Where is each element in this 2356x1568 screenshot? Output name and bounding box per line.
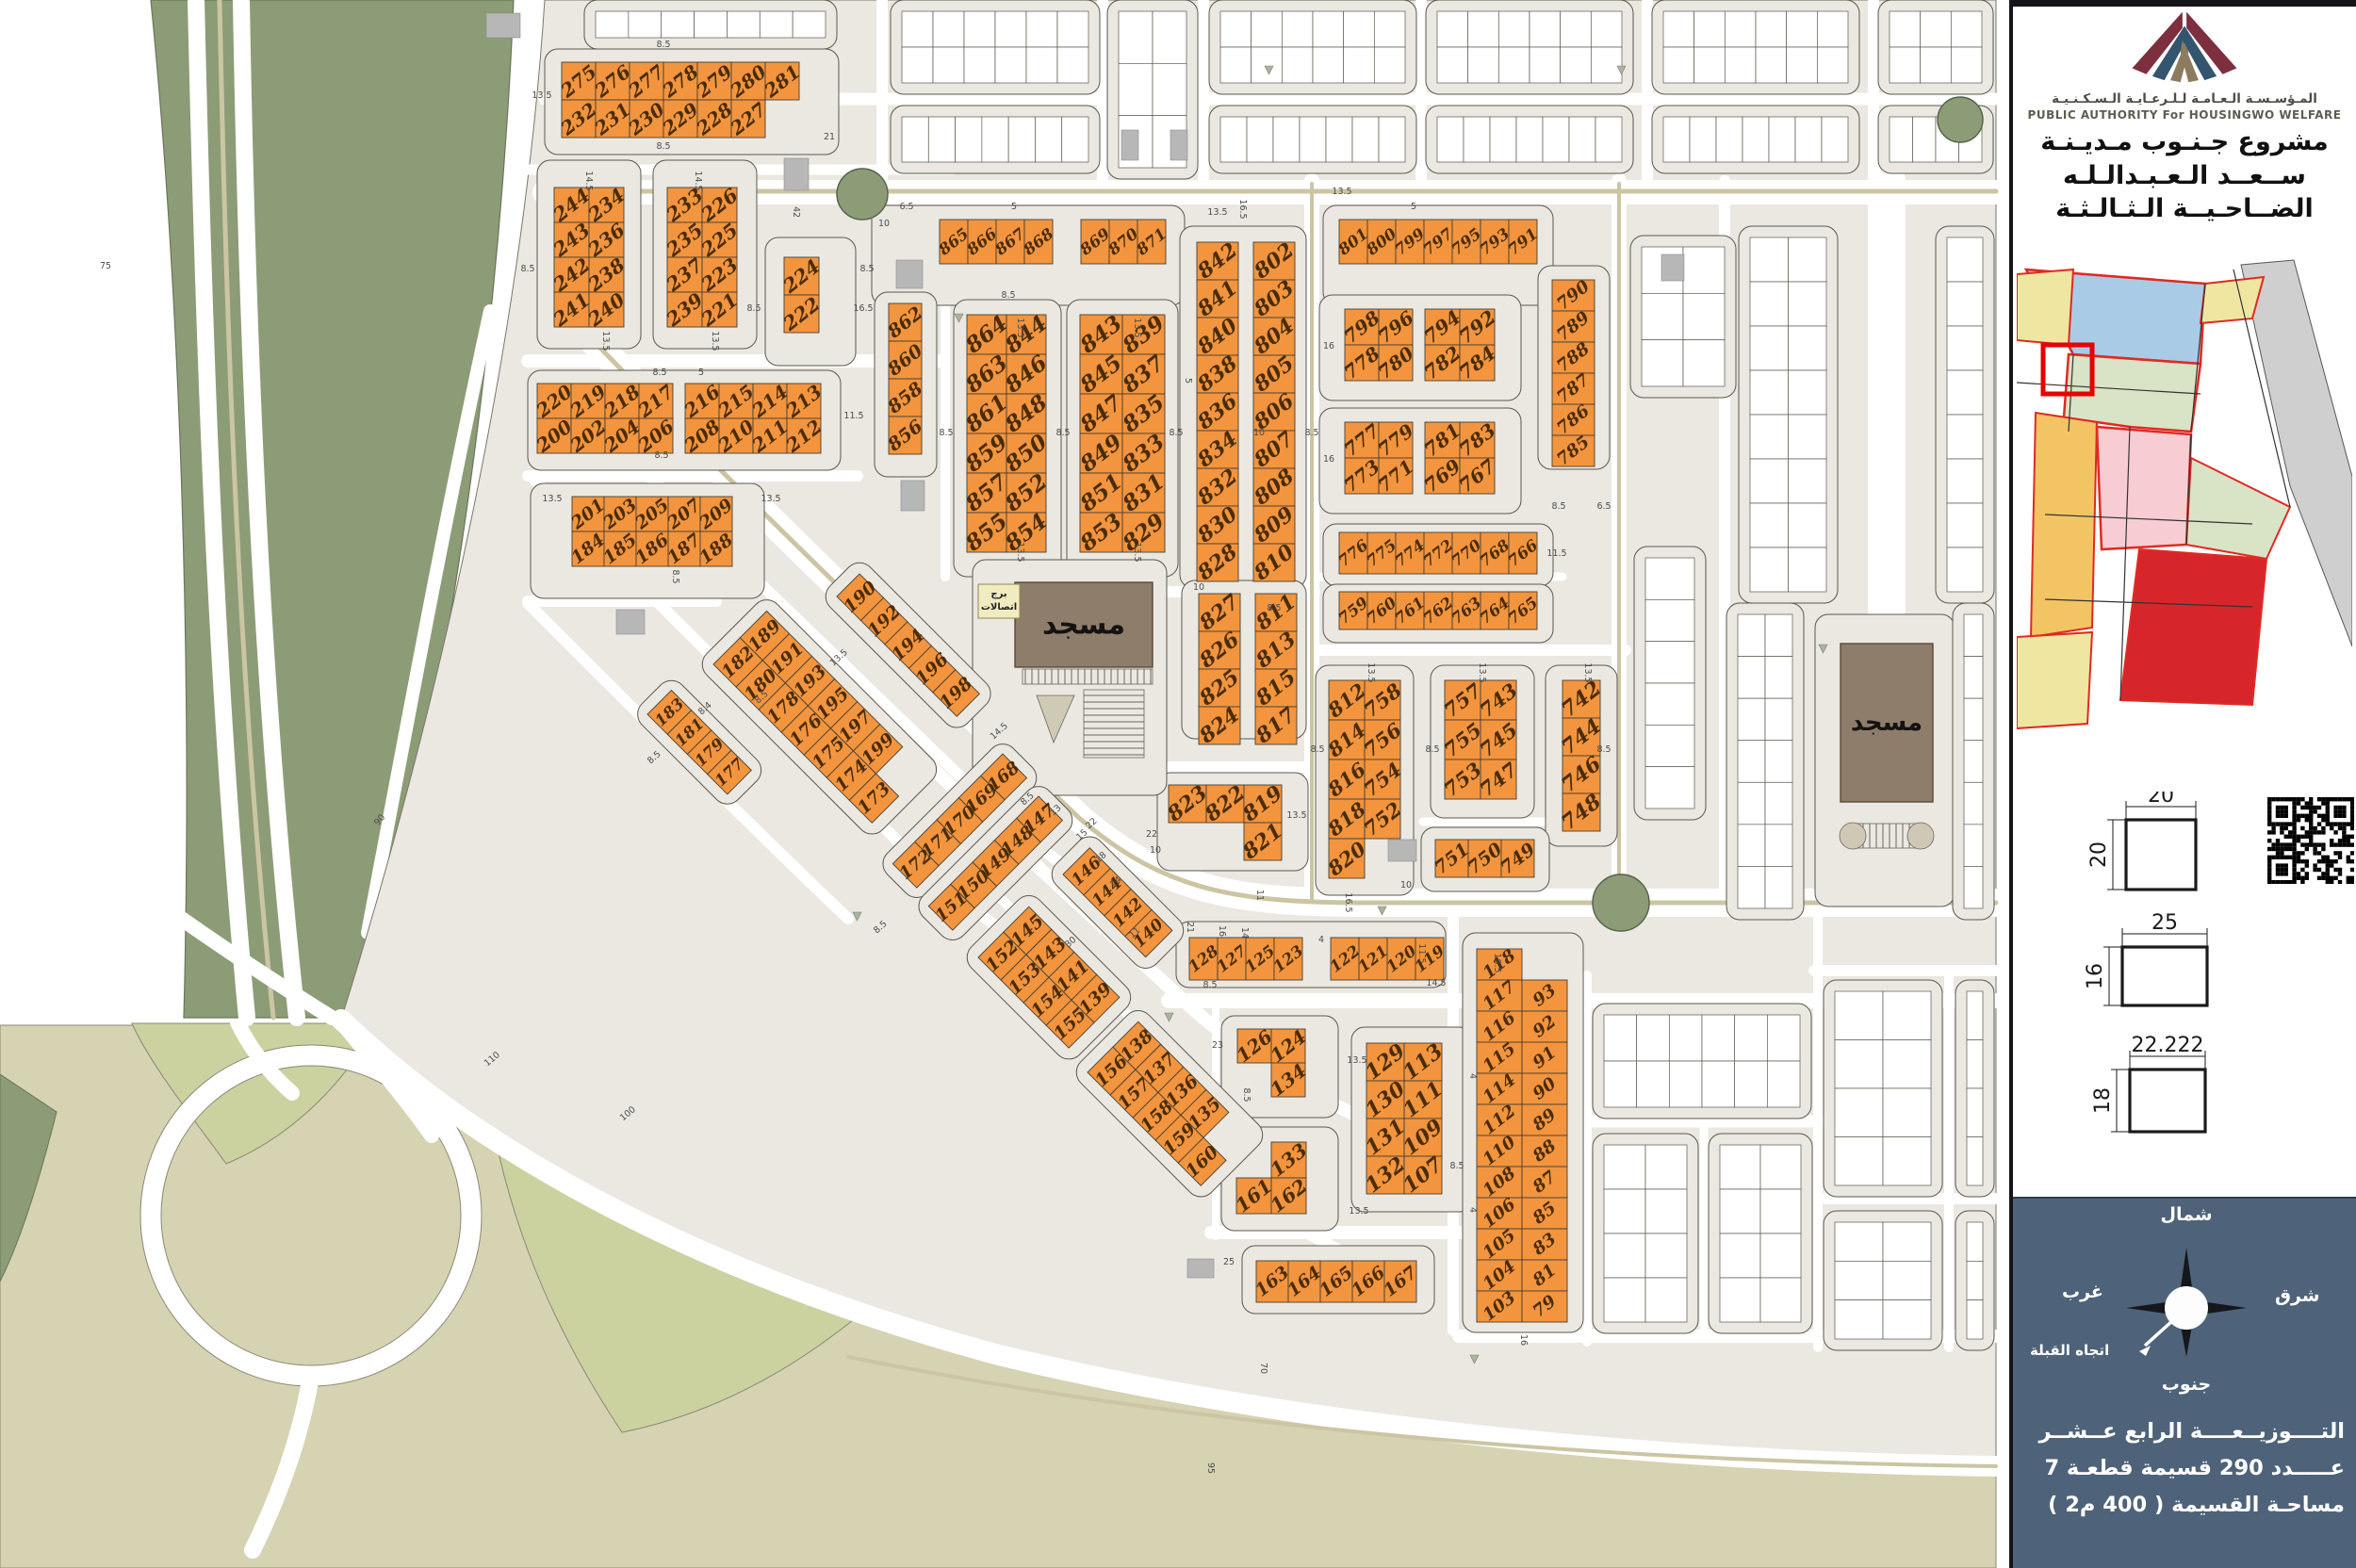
plot-cluster: 220219218217200202204206 <box>532 380 679 457</box>
dimension-label: 4 <box>1467 1073 1478 1079</box>
dimension-label: 8.5 <box>656 141 670 152</box>
dimension-label: 8.5 <box>654 450 668 461</box>
plot-cluster: 244234243236242238241240 <box>548 184 630 332</box>
unshaded-plot-block <box>1209 106 1416 173</box>
dimension-label: 8.5 <box>939 428 953 438</box>
qr-code <box>2267 797 2354 888</box>
plot-cluster: 129113130111131109132107 <box>1361 1039 1448 1199</box>
dimension-label: 16 <box>1518 1334 1529 1346</box>
dimension-label: 13.5 <box>542 494 562 504</box>
dimension-label: 14.5 <box>1426 978 1446 988</box>
dimension-label: 95 <box>1205 1462 1216 1474</box>
dimension-label: 13.5 <box>1132 318 1142 337</box>
compass-south-label: جنوب <box>2162 1374 2211 1395</box>
housing-authority-logo-icon <box>2124 8 2245 88</box>
utility-box <box>616 610 645 634</box>
dimension-label: 4 <box>1467 1207 1478 1213</box>
dimension-label: 5 <box>1183 378 1193 384</box>
dimension-label: 13.5 <box>1015 318 1025 337</box>
dimension-label: 10 <box>1150 845 1161 856</box>
figure2-height-label: 16 <box>2084 963 2107 989</box>
dimension-label: 11 <box>1254 890 1265 901</box>
figure2-width-label: 25 <box>2151 911 2178 935</box>
dimension-label: 13.5 <box>1349 1206 1368 1217</box>
dimension-label: 21 <box>824 132 835 142</box>
dimension-label: 10 <box>1253 428 1265 438</box>
project-title-line2: ســعــد الـعـبـدالـلـه <box>2013 159 2356 193</box>
plot-cluster: 777779773771 <box>1339 419 1418 497</box>
dimension-label: 75 <box>100 261 111 271</box>
dimension-label: 8.5 <box>1169 428 1183 438</box>
plot-cluster: 862860858856 <box>883 302 927 456</box>
dimension-label: 23 <box>1212 1040 1223 1051</box>
dimension-label: 14.5 <box>583 171 594 190</box>
dimension-label: 5 <box>1011 202 1017 212</box>
dimension-label: 42 <box>791 206 801 218</box>
utility-box <box>1661 254 1684 281</box>
dimension-label: 6.5 <box>1596 501 1611 512</box>
roundabout <box>1593 874 1649 931</box>
dimension-label: 8.5 <box>1055 428 1070 438</box>
figure3-width-label: 22.222 <box>2132 1034 2204 1057</box>
info-sidebar: المـؤسـسـة الـعـامـة لـلـرعـايـة الـسـكـ… <box>2009 0 2356 1568</box>
plot-cluster: 216215214213208210211212 <box>679 380 826 457</box>
dimension-label: 8.5 <box>1310 744 1324 755</box>
mosque-label: مسجد <box>1042 609 1125 642</box>
mosque: مسجد <box>1015 582 1153 667</box>
dimension-label: 11.5 <box>1416 943 1427 963</box>
dimension-label: 22 <box>1146 829 1157 840</box>
svg-text:اتصالات: اتصالات <box>981 602 1017 612</box>
authority-name-english: PUBLIC AUTHORITY For HOUSINGWO WELFARE <box>2013 108 2356 122</box>
utility-box <box>1187 1259 1214 1278</box>
plot-cluster: 776775774772770768766 <box>1335 532 1542 574</box>
dimension-label: 13.5 <box>1332 187 1351 197</box>
dimension-label: 8.5 <box>1449 1161 1464 1171</box>
sidebar-top-bar <box>2013 0 2356 7</box>
unshaded-plot-block <box>1209 0 1416 94</box>
utility-box <box>486 13 520 38</box>
unshaded-plot-block <box>1426 106 1633 173</box>
mini-zoning-map <box>2017 232 2352 778</box>
dimension-label: 8.5 <box>859 264 874 274</box>
unshaded-plot-block <box>1634 547 1706 820</box>
dimension-label: 10 <box>1400 880 1412 890</box>
mosque-parking-2 <box>1840 823 1934 849</box>
distribution-title: التــــوزيــعــــة الرابع عــشــر <box>2022 1413 2345 1450</box>
utility-box <box>784 158 809 190</box>
plot-cluster: 163164165166167 <box>1252 1261 1421 1302</box>
unshaded-plot-block <box>584 0 837 49</box>
plot-cluster: 751750749 <box>1431 838 1540 878</box>
city-plot-map: 2752762772782792802812322312302292282272… <box>0 0 2009 1568</box>
dimension-label: 8.5 <box>1001 290 1015 301</box>
dimension-label: 13.5 <box>1015 542 1025 562</box>
plot-cluster: 843839845837847835849833851831853829 <box>1074 311 1169 558</box>
unshaded-plot-block <box>1593 1004 1811 1119</box>
plot-cluster: 233226235225237223239221 <box>662 184 743 332</box>
utility-box <box>1170 130 1187 160</box>
dimension-label: 14.5 <box>693 171 703 190</box>
dimension-label: 10 <box>1193 582 1204 593</box>
telecom-tower-box: برجاتصالات <box>978 584 1020 618</box>
dimension-label: 13.5 <box>600 331 611 351</box>
plot-cluster: 757743755745753747 <box>1439 678 1522 801</box>
unshaded-plot-block <box>1955 1211 1994 1350</box>
dimension-label: 6.5 <box>899 202 913 212</box>
unshaded-plot-block <box>1824 980 1942 1197</box>
dimension-label: 4 <box>1318 935 1324 945</box>
utility-box <box>901 481 924 511</box>
plot-cluster: 801800799797795793791 <box>1334 220 1542 264</box>
dimension-label: 16 <box>1323 454 1334 465</box>
unshaded-plot-block <box>1652 0 1859 94</box>
dimension-label: 13.5 <box>532 90 551 101</box>
plot-cluster: 864844863846861848859850857852855854 <box>960 311 1052 558</box>
plot-cluster: 865866867868869870871 <box>935 220 1170 264</box>
figure1-width-label: 20 <box>2148 792 2174 808</box>
dimension-label: 8.5 <box>520 264 534 274</box>
plot-cluster: 781783769767 <box>1419 418 1499 497</box>
dimension-label: 13.5 <box>710 331 720 351</box>
dimension-label: 13.5 <box>1207 207 1227 218</box>
plot-cluster: 798796778780 <box>1339 306 1418 384</box>
figure1-height-label: 20 <box>2087 841 2111 868</box>
dimension-label: 8.5 <box>1267 603 1281 613</box>
plot-cluster: 224222 <box>778 254 825 335</box>
plot-cluster: 742744746748 <box>1557 677 1606 836</box>
dimension-label: 70 <box>1258 1363 1268 1374</box>
svg-text:برج: برج <box>990 589 1006 599</box>
plot-cluster: 1181179311692115911149011289110881088710… <box>1477 945 1567 1325</box>
dimension-label: 13.5 <box>1132 542 1142 562</box>
unshaded-plot-block <box>1955 980 1994 1197</box>
dimension-label: 10 <box>878 219 890 229</box>
dimension-label: 11.5 <box>1546 548 1566 559</box>
dimension-label: 8.5 <box>1304 428 1318 438</box>
dimension-label: 8.5 <box>746 303 761 314</box>
dimension-label: 21 <box>1185 922 1195 933</box>
dimension-label: 8.5 <box>1425 744 1439 755</box>
unshaded-plot-block <box>1953 603 1994 920</box>
utility-box <box>1388 840 1416 861</box>
dimension-label: 16 <box>1323 341 1334 351</box>
plot-dimension-figures: 20 20 25 16 22.222 18 <box>2013 792 2356 1197</box>
roundabout <box>837 169 888 220</box>
mosque-label: مسجد <box>1851 709 1922 737</box>
dimension-label: 13.5 <box>1347 1055 1366 1066</box>
unshaded-plot-block <box>1878 0 1993 94</box>
plot-area-line: مساحـة القسيمة ( 400 م2 ) <box>2022 1487 2345 1524</box>
unshaded-plot-block <box>1726 603 1804 920</box>
unshaded-plot-block <box>891 0 1100 94</box>
compass-west-label: غرب <box>2062 1282 2103 1302</box>
dimension-label: 16.5 <box>1343 892 1353 912</box>
legend-panel: شمال شرق غرب جنوب اتجاه القبلة التــــوز… <box>2013 1197 2356 1568</box>
dimension-label: 13.5 <box>1477 662 1487 682</box>
unshaded-plot-block <box>1709 1134 1812 1333</box>
plot-map-sheet: 2752762772782792802812322312302292282272… <box>0 0 2356 1568</box>
dimension-label: 16 <box>1217 925 1227 937</box>
dimension-label: 16.5 <box>1237 199 1248 219</box>
unshaded-plot-block <box>1936 226 1994 603</box>
unshaded-plot-block <box>891 106 1100 173</box>
unshaded-plot-block <box>1593 1134 1698 1333</box>
dimension-label: 8.5 <box>1241 1087 1252 1102</box>
dimension-label: 13.5 <box>761 494 780 504</box>
dimension-label: 13.5 <box>1366 662 1376 682</box>
dimension-label: 11.5 <box>843 411 863 421</box>
dimension-label: 5 <box>698 367 704 378</box>
dimension-label: 8.5 <box>656 40 670 50</box>
compass-north-label: شمال <box>2160 1204 2212 1225</box>
plot-cluster: 201203205207209184185186187188 <box>566 495 737 568</box>
plot-cluster: 794792782784 <box>1419 305 1499 384</box>
dimension-label: 8.5 <box>670 569 680 583</box>
dimension-label: 8.5 <box>652 367 666 378</box>
plot-count-line: عـــــدد 290 قسيمة قطعـة 7 <box>2022 1450 2345 1487</box>
plot-cluster: 790789788787786785 <box>1552 276 1595 469</box>
unshaded-plot-block <box>1652 106 1859 173</box>
unshaded-plot-block <box>1426 0 1633 94</box>
compass-east-label: شرق <box>2275 1285 2320 1306</box>
qibla-direction-label: اتجاه القبلة <box>2030 1342 2109 1359</box>
dimension-label: 25 <box>1223 1257 1235 1267</box>
project-title-line1: مشروع جـنـوب مـديـنـة <box>2013 125 2356 159</box>
dimension-label: 13.5 <box>1582 662 1593 682</box>
roundabout <box>1938 97 1983 142</box>
dimension-label: 18.5 <box>1492 953 1502 972</box>
dimension-label: 14 <box>1239 927 1250 939</box>
dimension-label: 16.5 <box>853 303 873 314</box>
dimension-label: 8.5 <box>1203 980 1217 990</box>
unshaded-plot-block <box>1739 226 1838 603</box>
utility-box <box>896 260 923 288</box>
mosque: مسجد <box>1841 644 1933 802</box>
utility-box <box>1121 130 1138 160</box>
unshaded-plot-block <box>1824 1211 1942 1350</box>
figure3-height-label: 18 <box>2091 1087 2115 1114</box>
project-title-line3: الضــاحـيــة الـثـالـثـة <box>2013 192 2356 226</box>
dimension-label: 5 <box>1411 202 1416 212</box>
dimension-label: 8.5 <box>1551 501 1565 512</box>
authority-name-arabic: المـؤسـسـة الـعـامـة لـلـرعـايـة الـسـكـ… <box>2013 91 2356 106</box>
dimension-label: 8.5 <box>1596 744 1611 755</box>
plot-cluster: 759760761762763764765 <box>1335 592 1542 629</box>
dimension-label: 13.5 <box>1286 810 1306 821</box>
